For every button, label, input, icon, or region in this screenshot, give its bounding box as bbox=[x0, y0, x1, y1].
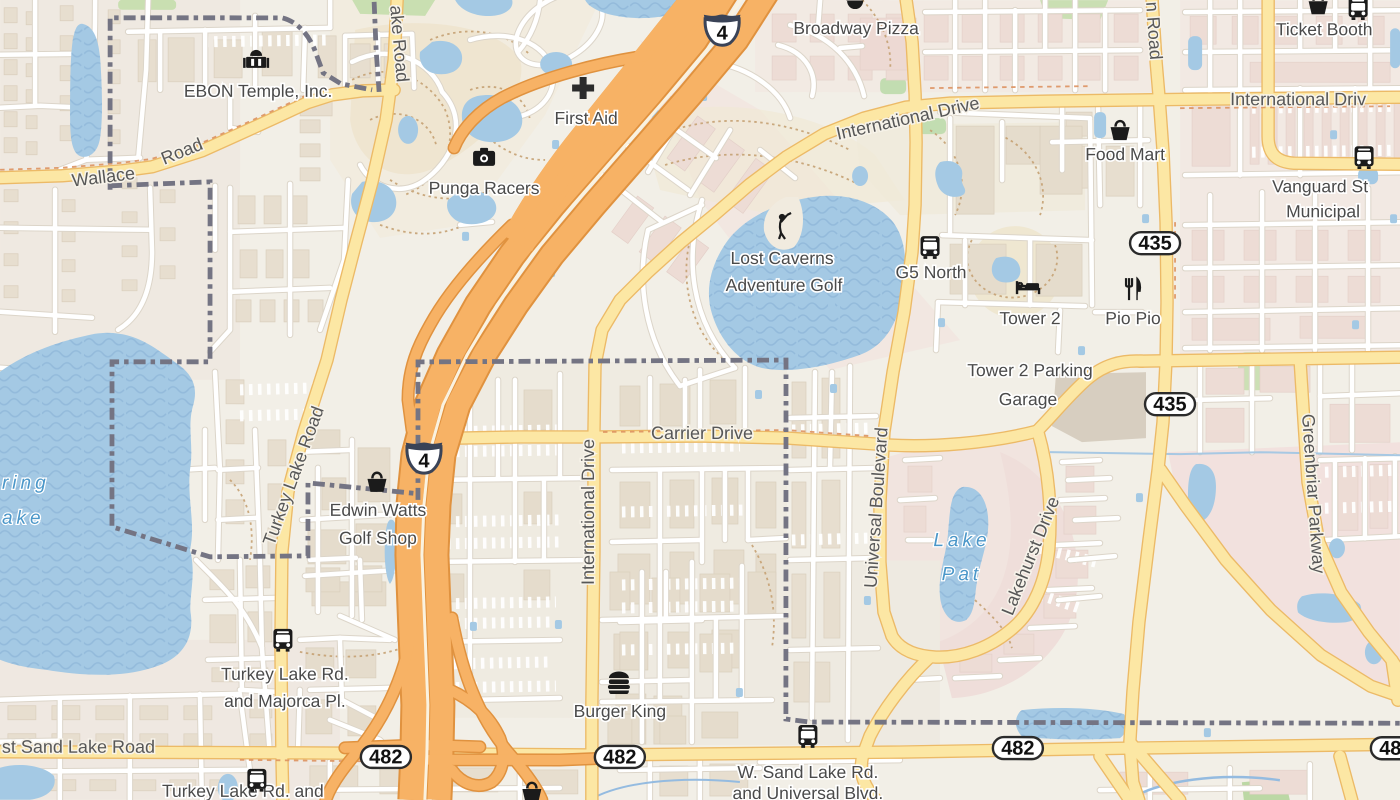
svg-text:482: 482 bbox=[369, 746, 402, 768]
svg-text:Turkey Lake Rd. and: Turkey Lake Rd. and bbox=[162, 781, 324, 800]
svg-text:Garage: Garage bbox=[999, 389, 1057, 409]
svg-text:482: 482 bbox=[1379, 738, 1400, 760]
svg-text:Lake: Lake bbox=[933, 530, 990, 551]
svg-text:First Aid: First Aid bbox=[554, 108, 617, 128]
svg-text:Punga Racers: Punga Racers bbox=[429, 178, 540, 198]
svg-text:W. Sand Lake Rd.: W. Sand Lake Rd. bbox=[737, 762, 878, 782]
svg-text:Edwin Watts: Edwin Watts bbox=[330, 500, 427, 520]
svg-text:Carrier Drive: Carrier Drive bbox=[651, 423, 753, 443]
svg-text:Turkey Lake Rd.: Turkey Lake Rd. bbox=[221, 664, 349, 684]
svg-text:Adventure Golf: Adventure Golf bbox=[726, 275, 843, 295]
svg-text:ring: ring bbox=[2, 473, 50, 494]
svg-text:435: 435 bbox=[1153, 394, 1186, 416]
svg-text:Burger King: Burger King bbox=[574, 701, 666, 721]
svg-text:G5 North: G5 North bbox=[896, 262, 967, 282]
svg-text:ake: ake bbox=[2, 508, 45, 529]
svg-text:435: 435 bbox=[1138, 233, 1171, 255]
svg-text:and Universal Blvd.: and Universal Blvd. bbox=[732, 783, 883, 800]
svg-text:Vanguard St: Vanguard St bbox=[1272, 176, 1368, 196]
svg-text:International Drive: International Drive bbox=[578, 439, 598, 585]
svg-text:and Majorca Pl.: and Majorca Pl. bbox=[224, 691, 346, 711]
svg-text:EBON Temple, Inc.: EBON Temple, Inc. bbox=[184, 81, 333, 101]
svg-text:Ticket Booth: Ticket Booth bbox=[1276, 19, 1373, 39]
svg-text:Food Mart: Food Mart bbox=[1085, 144, 1165, 164]
svg-text:Tower 2 Parking: Tower 2 Parking bbox=[967, 360, 1092, 380]
svg-text:Tower 2: Tower 2 bbox=[999, 308, 1060, 328]
svg-text:482: 482 bbox=[1001, 738, 1034, 760]
svg-text:482: 482 bbox=[603, 746, 636, 768]
svg-text:Golf Shop: Golf Shop bbox=[339, 528, 417, 548]
svg-text:Lost Caverns: Lost Caverns bbox=[730, 248, 833, 268]
svg-text:Broadway Pizza: Broadway Pizza bbox=[793, 18, 919, 38]
svg-text:Pat: Pat bbox=[942, 564, 983, 585]
svg-text:st Sand Lake Road: st Sand Lake Road bbox=[2, 737, 155, 757]
svg-text:International Driv: International Driv bbox=[1230, 89, 1366, 109]
svg-text:n Road: n Road bbox=[1142, 1, 1166, 60]
svg-text:Pio Pio: Pio Pio bbox=[1105, 308, 1160, 328]
svg-text:Municipal: Municipal bbox=[1286, 201, 1360, 221]
